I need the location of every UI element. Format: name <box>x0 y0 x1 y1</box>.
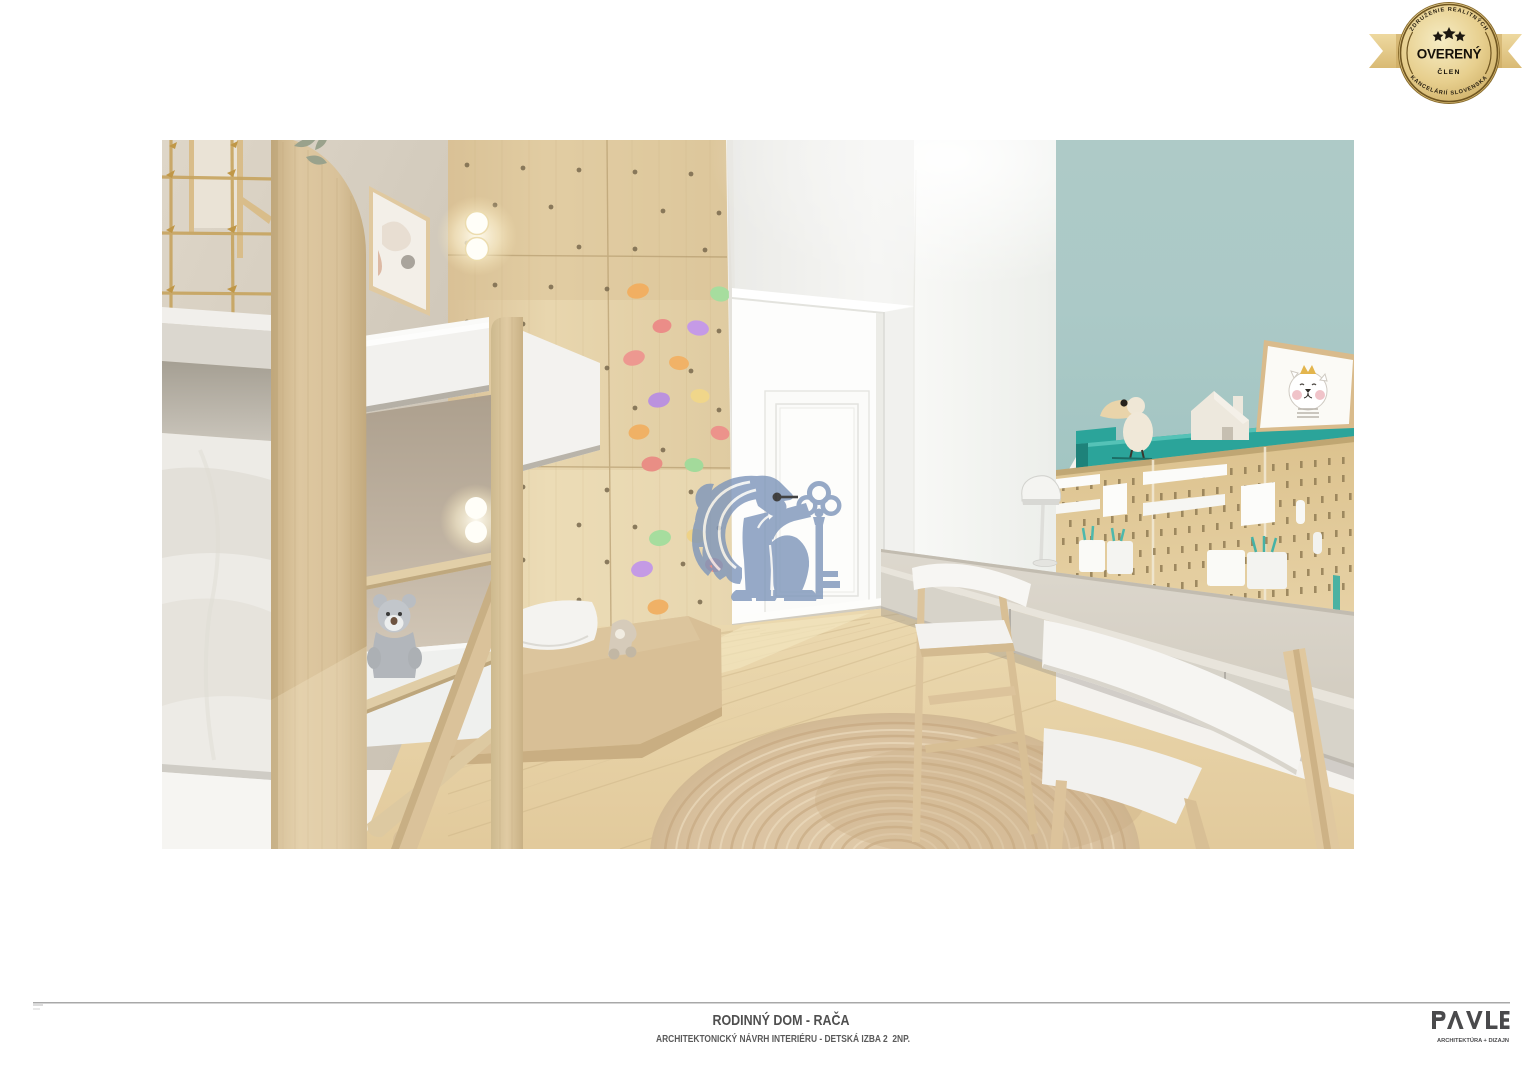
svg-text:OVERENÝ: OVERENÝ <box>1417 47 1482 62</box>
svg-text:ARCHITEKTONICKÝ NÁVRH INTERIÉR: ARCHITEKTONICKÝ NÁVRH INTERIÉRU - DETSKÁ… <box>656 1032 910 1045</box>
svg-text:ARCHITEKTÚRA + DIZAJN: ARCHITEKTÚRA + DIZAJN <box>1437 1037 1509 1044</box>
svg-text:ČLEN: ČLEN <box>1437 67 1460 76</box>
svg-text:RODINNÝ DOM - RAČA: RODINNÝ DOM - RAČA <box>713 1011 850 1029</box>
